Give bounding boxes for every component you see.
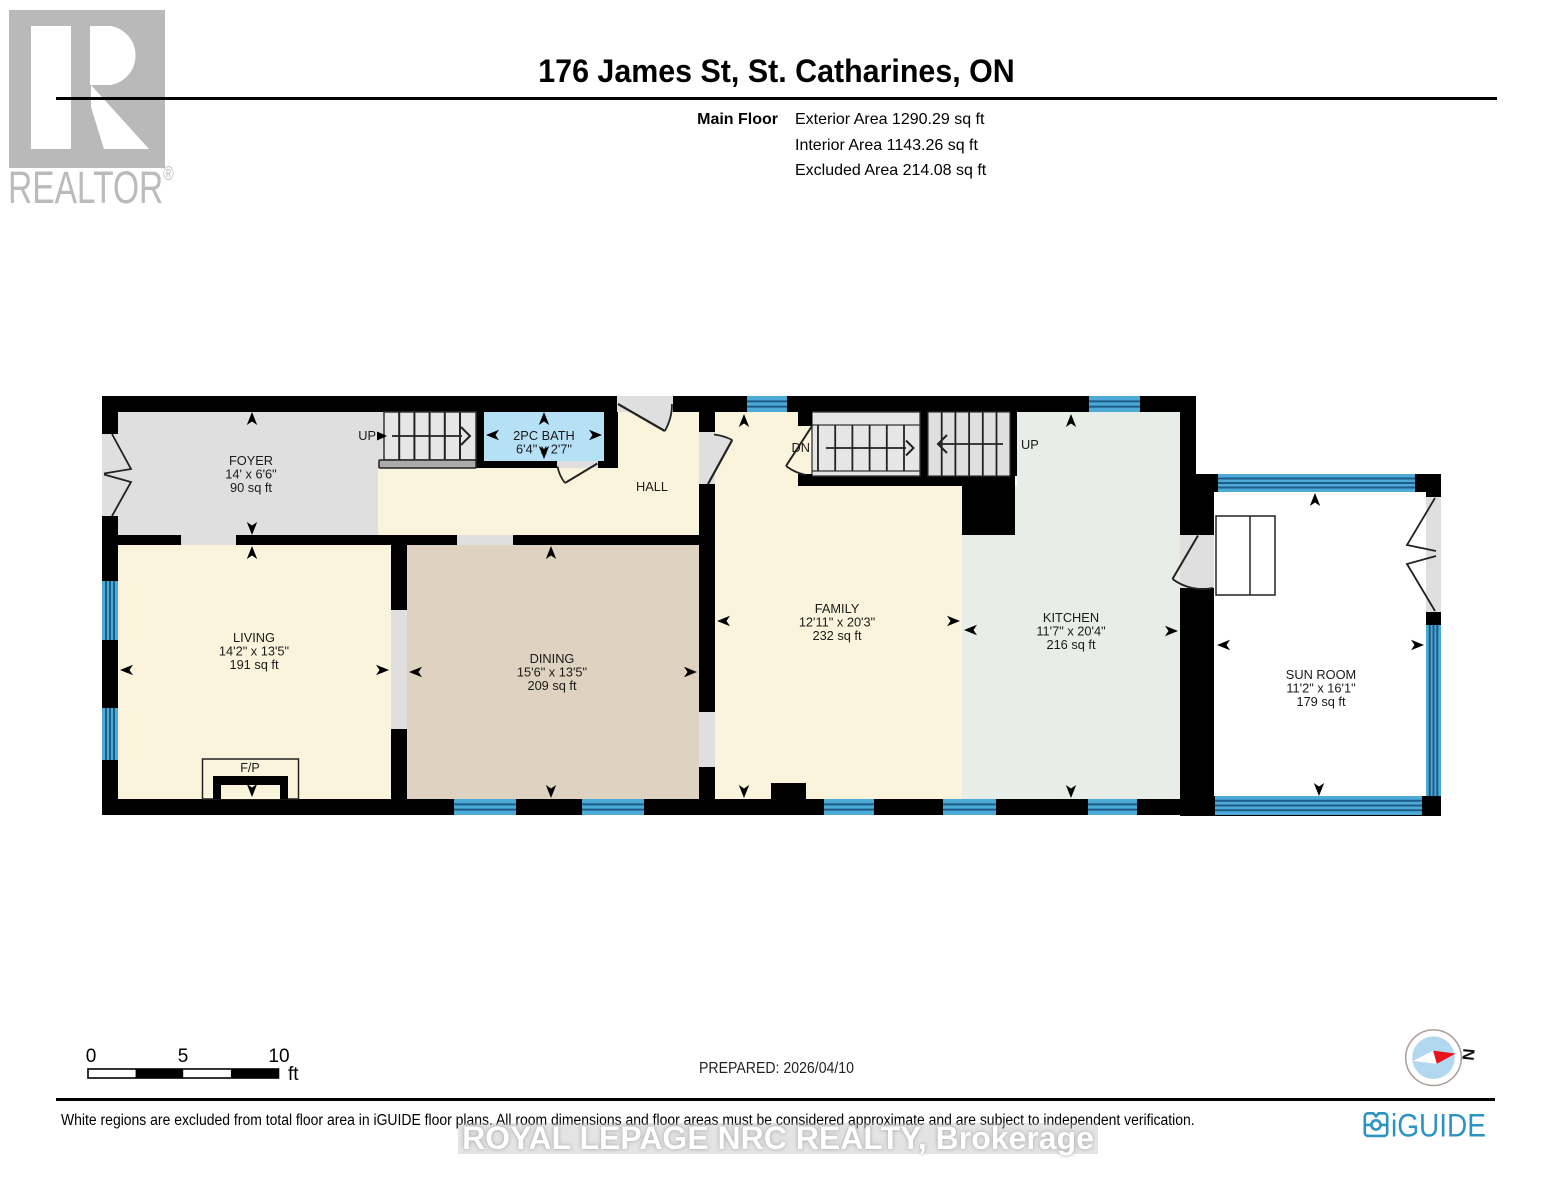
svg-text:90 sq ft: 90 sq ft bbox=[230, 480, 272, 495]
svg-text:F/P: F/P bbox=[240, 761, 259, 775]
svg-text:191 sq ft: 191 sq ft bbox=[229, 657, 279, 672]
svg-text:iGUIDE: iGUIDE bbox=[1391, 1108, 1486, 1144]
svg-text:UP: UP bbox=[1021, 437, 1039, 452]
svg-text:179 sq ft: 179 sq ft bbox=[1296, 694, 1346, 709]
svg-text:232 sq ft: 232 sq ft bbox=[812, 628, 862, 643]
svg-text:N: N bbox=[1458, 1048, 1477, 1062]
svg-text:209 sq ft: 209 sq ft bbox=[527, 678, 577, 693]
svg-text:UP: UP bbox=[358, 428, 376, 443]
svg-text:216 sq ft: 216 sq ft bbox=[1046, 637, 1096, 652]
svg-text:DN: DN bbox=[792, 440, 810, 455]
svg-text:HALL: HALL bbox=[636, 479, 668, 494]
